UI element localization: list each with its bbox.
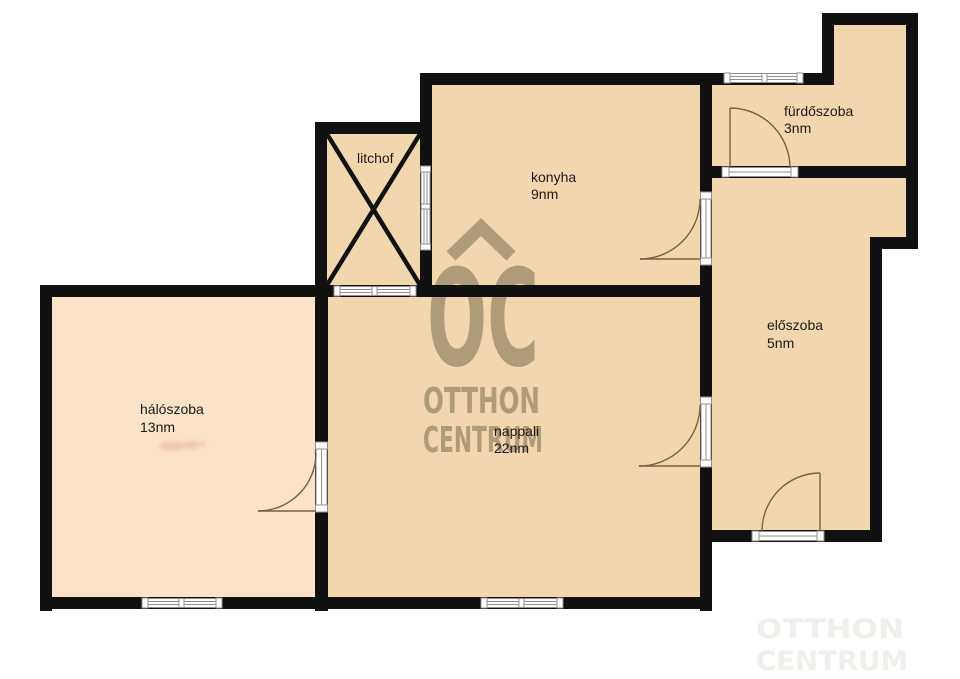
wall-segment-furdo-connector bbox=[822, 13, 834, 85]
door-sill-furdoszoba bbox=[722, 167, 798, 177]
door-sill-cap bbox=[791, 167, 798, 177]
window-mullion bbox=[421, 204, 430, 209]
door-sill-cap bbox=[701, 258, 712, 265]
door-sill-nappali-eloszoba bbox=[701, 397, 712, 467]
room-floor-furdoszoba-notch bbox=[834, 25, 906, 85]
door-sill-cap bbox=[701, 460, 712, 467]
window-end-cap bbox=[557, 598, 563, 608]
room-label-litchof: litchof bbox=[357, 150, 394, 166]
wall-segment-bottom-exterior bbox=[40, 597, 712, 609]
window-end-cap bbox=[334, 286, 340, 296]
window-nappali-bottom bbox=[481, 598, 563, 608]
room-area-haloszoba: 13nm bbox=[140, 419, 175, 435]
wall-segment-right-lower bbox=[870, 237, 882, 542]
window-litchof-bottom bbox=[334, 286, 416, 296]
floor-plan-canvas: OC OTTHON CENTRUM OTTHON CENTRUM bbox=[0, 0, 960, 679]
window-haloszoba-bottom bbox=[142, 598, 222, 608]
window-mullion bbox=[519, 599, 524, 608]
room-label-eloszoba: előszoba bbox=[767, 317, 823, 333]
door-sill-konyha-eloszoba bbox=[701, 192, 712, 265]
window-end-cap bbox=[481, 598, 487, 608]
door-sill-cap bbox=[722, 167, 729, 177]
door-sill-cap bbox=[752, 531, 759, 541]
room-area-nappali: 22nm bbox=[494, 440, 529, 456]
window-mullion bbox=[372, 287, 377, 296]
wall-segment-right-upper bbox=[906, 13, 918, 249]
door-sill-cap bbox=[316, 505, 328, 512]
watermark-brand-line1: OTTHON bbox=[423, 381, 540, 422]
window-end-cap bbox=[142, 598, 148, 608]
watermark-ghost-line2: CENTRUM bbox=[756, 646, 908, 677]
room-label-konyha: konyha bbox=[531, 169, 576, 185]
wall-segment-litchof-top bbox=[315, 122, 432, 134]
window-end-cap bbox=[421, 166, 431, 172]
watermark-logo-text: OC bbox=[427, 241, 539, 397]
wall-segment-litchof-left bbox=[315, 122, 327, 297]
door-sill-cap bbox=[316, 442, 328, 449]
window-end-cap bbox=[797, 73, 803, 83]
door-sill-haloszoba bbox=[316, 442, 328, 512]
room-floor-eloszoba-upper bbox=[712, 178, 906, 237]
window-mullion bbox=[179, 599, 184, 608]
room-label-furdoszoba: fürdőszoba bbox=[784, 103, 853, 119]
wall-segment-left-exterior bbox=[40, 285, 52, 611]
window-end-cap bbox=[421, 244, 431, 250]
door-sill-cap bbox=[701, 397, 712, 404]
window-end-cap bbox=[216, 598, 222, 608]
watermark-ghost: OTTHON CENTRUM bbox=[756, 614, 908, 677]
room-floor-eloszoba-lower bbox=[712, 237, 870, 530]
window-mullion bbox=[762, 74, 767, 83]
window-end-cap bbox=[724, 73, 730, 83]
room-area-konyha: 9nm bbox=[531, 186, 558, 202]
window-end-cap bbox=[410, 286, 416, 296]
room-label-nappali: nappali bbox=[494, 423, 539, 439]
door-sill-cap bbox=[701, 192, 712, 199]
room-label-haloszoba: hálószoba bbox=[140, 401, 204, 417]
door-sill-eloszoba-exit bbox=[752, 531, 824, 541]
watermark-ghost-line1: OTTHON bbox=[756, 614, 904, 645]
room-area-furdoszoba: 3nm bbox=[784, 120, 811, 136]
room-area-eloszoba: 5nm bbox=[767, 335, 794, 351]
wall-segment-top-right bbox=[822, 13, 918, 25]
window-litchof-right bbox=[421, 166, 431, 250]
window-konyha-top bbox=[724, 73, 803, 83]
floor-plan-page: OC OTTHON CENTRUM OTTHON CENTRUM bbox=[0, 0, 960, 679]
door-sill-cap bbox=[817, 531, 824, 541]
